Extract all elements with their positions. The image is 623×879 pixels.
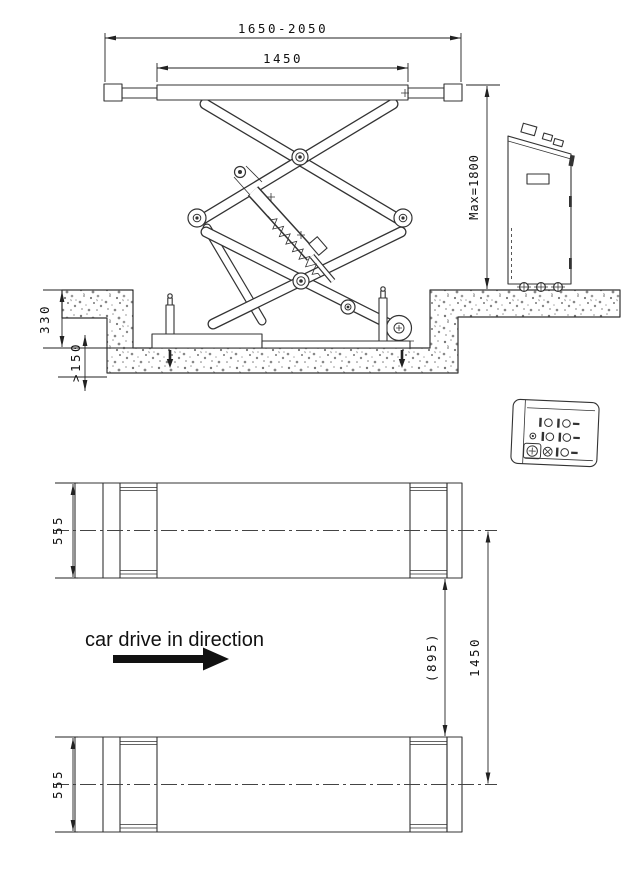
dim-center-distance-label: 1450 xyxy=(467,637,482,677)
cabinet-anchor-bolts xyxy=(517,283,565,292)
pivot-joints xyxy=(188,149,412,314)
plan-view: car drive in direction 555 555 (895 xyxy=(50,483,497,832)
safety-jack-left xyxy=(166,294,174,334)
raise-button[interactable] xyxy=(521,123,537,136)
power-unit-cabinet-side xyxy=(508,123,575,291)
safety-jack-right xyxy=(379,287,387,341)
nameplate xyxy=(527,174,549,184)
front-platform-plan xyxy=(53,483,497,578)
dim-max-height: Max=1800 xyxy=(466,85,500,289)
dim-pit-depth-label: 330 xyxy=(37,304,52,334)
dim-platform-length: 1450 xyxy=(157,51,408,82)
scissor-mechanism xyxy=(166,104,414,368)
dim-platform-length-label: 1450 xyxy=(263,51,303,66)
dim-foundation-depth-label: >150 xyxy=(68,342,83,382)
drive-direction-label: car drive in direction xyxy=(85,629,264,651)
side-view: 1650-2050 1450 Max=1800 330 xyxy=(37,21,620,391)
extension-ramp-left xyxy=(104,84,122,101)
dim-center-distance: 1450 xyxy=(467,532,490,784)
dim-overall-length-label: 1650-2050 xyxy=(238,21,328,36)
lift-platform-side xyxy=(104,84,462,101)
drive-direction: car drive in direction xyxy=(85,629,264,671)
rear-platform-plan xyxy=(53,737,497,832)
scissor-lift-technical-drawing: 1650-2050 1450 Max=1800 330 xyxy=(0,0,623,879)
base-plate xyxy=(152,334,410,348)
dim-max-height-label: Max=1800 xyxy=(467,154,481,220)
dim-foundation-depth: >150 xyxy=(58,335,107,391)
drawing-canvas: 1650-2050 1450 Max=1800 330 xyxy=(0,0,623,879)
dim-front-width-label: 555 xyxy=(50,515,65,545)
dim-inner-gap-label: (895) xyxy=(424,632,439,682)
extension-ramp-right xyxy=(444,84,462,101)
dim-inner-gap: (895) xyxy=(424,579,447,736)
dim-rear-width-label: 555 xyxy=(50,769,65,799)
lock-button[interactable] xyxy=(553,138,563,146)
hydraulic-cylinder xyxy=(234,166,333,281)
lower-button[interactable] xyxy=(542,133,552,141)
power-unit-cabinet-top xyxy=(511,399,600,467)
